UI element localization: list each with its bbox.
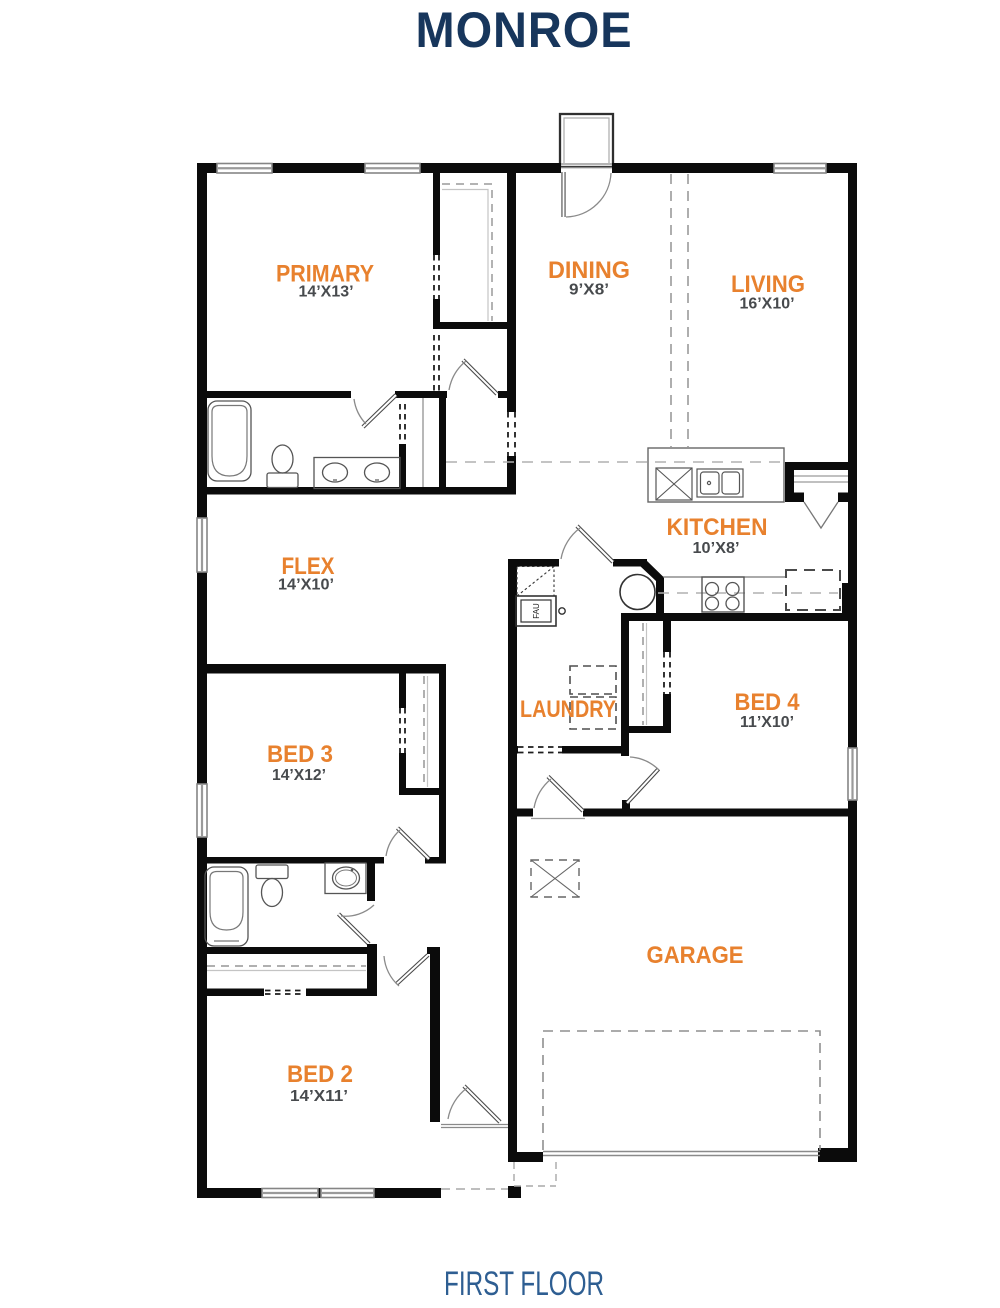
svg-text:14’X10’: 14’X10’ <box>278 577 334 594</box>
svg-text:16’X10’: 16’X10’ <box>740 296 795 313</box>
svg-text:FIRST FLOOR: FIRST FLOOR <box>444 1265 604 1303</box>
svg-text:14’X11’: 14’X11’ <box>290 1088 348 1105</box>
svg-text:FAU: FAU <box>532 603 541 619</box>
svg-text:10’X8’: 10’X8’ <box>693 540 740 557</box>
svg-text:BED 2: BED 2 <box>287 1061 353 1088</box>
svg-text:KITCHEN: KITCHEN <box>667 514 768 541</box>
svg-text:LAUNDRY: LAUNDRY <box>520 696 616 723</box>
svg-text:14’X13’: 14’X13’ <box>299 284 354 301</box>
svg-text:11’X10’: 11’X10’ <box>740 714 794 731</box>
svg-text:LIVING: LIVING <box>731 271 805 298</box>
svg-text:9’X8’: 9’X8’ <box>569 282 609 299</box>
svg-text:GARAGE: GARAGE <box>647 942 744 969</box>
svg-text:MONROE: MONROE <box>416 2 633 58</box>
svg-text:DINING: DINING <box>548 257 630 284</box>
svg-text:BED 3: BED 3 <box>267 741 333 768</box>
svg-text:BED 4: BED 4 <box>735 689 801 716</box>
svg-text:14’X12’: 14’X12’ <box>272 767 326 784</box>
